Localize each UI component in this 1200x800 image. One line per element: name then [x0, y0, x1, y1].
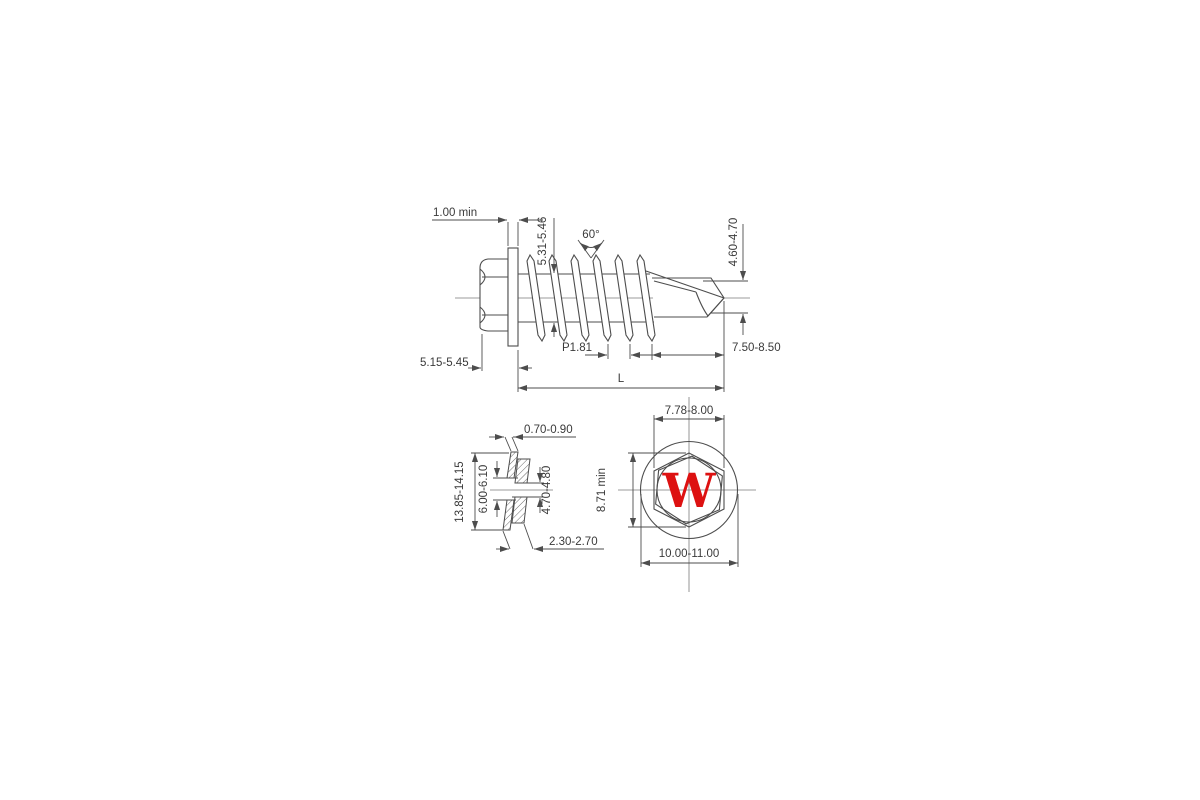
- dim-thread-diameter-label: 5.31-5.46: [537, 217, 549, 266]
- drill-point: [646, 271, 724, 317]
- dim-plate-thickness: 0.70-0.90: [489, 424, 576, 451]
- dim-seal-thickness-label: 2.30-2.70: [549, 536, 598, 548]
- dim-overall-length-label: L: [618, 373, 625, 385]
- dim-seal-hole-label: 4.70-4.80: [541, 466, 553, 515]
- dim-thread-angle-label: 60°: [582, 229, 599, 241]
- screenshot-canvas: 1.00 min 5.31-5.46 60° 4.60-4.70: [0, 0, 1200, 800]
- dim-flange-thickness-label: 1.00 min: [433, 207, 477, 219]
- dim-plate-thickness-label: 0.70-0.90: [524, 424, 573, 436]
- dim-head-washer-od-label: 10.00-11.00: [659, 548, 720, 560]
- dim-thread-angle: 60°: [578, 229, 604, 258]
- dim-point-diameter-label: 4.60-4.70: [728, 218, 740, 267]
- brand-w-logo: W: [662, 464, 717, 519]
- washer-plate-lower-section: [503, 500, 514, 530]
- washer-section-view: 0.70-0.90 13.85-14.15 6.00-6.10 4.70-4.8…: [454, 424, 604, 549]
- washer-flange: [508, 248, 518, 346]
- dim-head-height-label: 5.15-5.45: [420, 357, 469, 369]
- dim-thread-pitch-label: P1.81: [562, 342, 592, 354]
- dim-overall-length: L: [518, 373, 724, 388]
- screw-side-view: 1.00 min 5.31-5.46 60° 4.60-4.70: [420, 207, 781, 392]
- dim-plate-hole: 6.00-6.10: [478, 461, 497, 517]
- dim-point-diameter: 4.60-4.70: [703, 218, 748, 335]
- dim-seal-thickness: 2.30-2.70: [496, 524, 604, 549]
- dim-flange-thickness: 1.00 min: [432, 207, 543, 246]
- dim-plate-hole-label: 6.00-6.10: [478, 465, 490, 514]
- dim-across-flats-label: 7.78-8.00: [665, 405, 714, 417]
- hex-head-outline: [480, 259, 508, 331]
- dim-seal-hole: 4.70-4.80: [540, 466, 553, 515]
- dim-thread-pitch: P1.81: [562, 342, 652, 359]
- head-top-view: W 7.78-8.00 8.71 min 10.00-11.00: [596, 397, 756, 592]
- dim-point-length-label: 7.50-8.50: [732, 342, 781, 354]
- seal-upper-section: [515, 459, 530, 483]
- dim-washer-od-label: 13.85-14.15: [454, 461, 466, 522]
- technical-drawing: 1.00 min 5.31-5.46 60° 4.60-4.70: [0, 0, 1200, 800]
- dim-across-corners-label: 8.71 min: [596, 468, 608, 512]
- seal-lower-section: [512, 497, 527, 523]
